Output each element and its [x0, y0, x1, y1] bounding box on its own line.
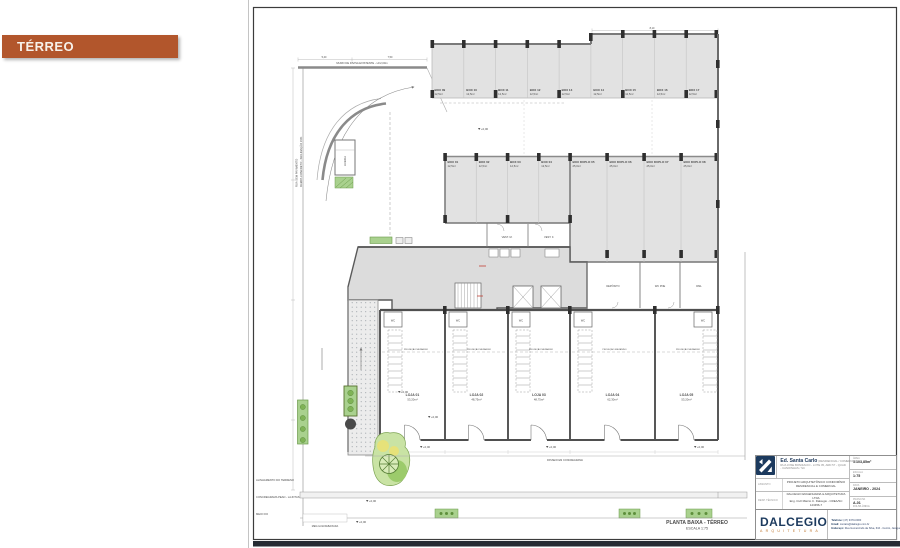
svg-text:WC: WC: [701, 320, 705, 323]
dalcegio-logo-icon: [756, 456, 775, 475]
svg-text:53,20m²: 53,20m²: [681, 398, 691, 402]
svg-text:PROJEÇÃO MEZANINO: PROJEÇÃO MEZANINO: [602, 348, 626, 351]
titleblock: SANTA CARLO Ed. Santa Carlo (RESIDENCIAL…: [755, 455, 897, 540]
svg-text:PASSEIO EM CONCREGRAMA: PASSEIO EM CONCREGRAMA: [547, 459, 583, 462]
svg-text:LOJA 03: LOJA 03: [532, 393, 546, 397]
field-date: DATA JANEIRO - 2024: [850, 483, 896, 497]
svg-text:BOX 14: BOX 14: [593, 88, 604, 92]
svg-text:+0,00: +0,00: [369, 499, 377, 503]
svg-text:25,0m²: 25,0m²: [610, 164, 618, 168]
dim-label: 8,10: [650, 27, 655, 30]
svg-text:WC: WC: [519, 320, 523, 323]
svg-text:WC: WC: [456, 320, 460, 323]
svg-text:BOX 13: BOX 13: [562, 88, 573, 92]
svg-text:+0,00: +0,00: [481, 127, 489, 131]
svg-text:25,0m²: 25,0m²: [684, 164, 692, 168]
svg-text:+0,00: +0,00: [549, 445, 557, 449]
svg-text:BOX 01: BOX 01: [448, 160, 459, 164]
svg-text:12,5m²: 12,5m²: [689, 92, 697, 96]
wall-note: MURO DE DIVISA EXISTENTE - H=2,00m: [336, 61, 388, 65]
firm-name: DALCEGIO: [760, 516, 827, 528]
svg-text:BOX 02: BOX 02: [479, 160, 490, 164]
field-area: ÁREA 1.103,85m²: [850, 456, 896, 470]
svg-text:+0,00: +0,00: [431, 415, 439, 419]
svg-text:WC PNE: WC PNE: [655, 284, 666, 288]
svg-text:BOX 16: BOX 16: [657, 88, 668, 92]
svg-text:12,5m²: 12,5m²: [448, 164, 456, 168]
svg-text:12,5m²: 12,5m²: [625, 92, 633, 96]
svg-text:WC: WC: [391, 320, 395, 323]
svg-text:BOX 12: BOX 12: [530, 88, 541, 92]
svg-text:VEST. F.: VEST. F.: [544, 235, 554, 239]
svg-text:12,5m²: 12,5m²: [510, 164, 518, 168]
svg-text:PROJEÇÃO MEZANINO: PROJEÇÃO MEZANINO: [404, 348, 428, 351]
firm-contact: Telefone: (47) 3370-0000 Email: contato@…: [827, 510, 900, 539]
svg-text:DML: DML: [696, 284, 702, 288]
svg-text:LIXEIRA: LIXEIRA: [343, 156, 347, 166]
svg-text:12,5m²: 12,5m²: [435, 92, 443, 96]
svg-text:12,5m²: 12,5m²: [541, 164, 549, 168]
svg-text:+0,00: +0,00: [697, 445, 705, 449]
stair-core: [455, 283, 481, 308]
svg-text:BOX 17: BOX 17: [689, 88, 700, 92]
titleblock-fields: ÁREA 1.103,85m² ESCALA 1:75 DATA JANEIRO…: [850, 456, 896, 509]
field-sheet: PRANCHA A-01 FOLHA ÚNICA: [850, 497, 896, 510]
dim-label: 5,40: [322, 56, 327, 59]
svg-text:12,5m²: 12,5m²: [479, 164, 487, 168]
svg-text:PROJEÇÃO MEZANINO: PROJEÇÃO MEZANINO: [676, 348, 700, 351]
svg-text:48,75m²: 48,75m²: [471, 398, 481, 402]
svg-text:12,5m²: 12,5m²: [593, 92, 601, 96]
svg-text:BOX DUPLO 06: BOX DUPLO 06: [610, 160, 632, 164]
field-scale: ESCALA 1:75: [850, 470, 896, 484]
street-label: RUA SEM PAVIMENTO: [295, 159, 299, 187]
svg-text:12,5m²: 12,5m²: [498, 92, 506, 96]
firm-logo: DALCEGIO ARQUITETURA: [756, 516, 827, 533]
svg-text:48,75m²: 48,75m²: [534, 398, 544, 402]
margin-note: MEIO FIO: [256, 512, 268, 516]
svg-text:+0,00: +0,00: [401, 390, 409, 394]
svg-text:+0,00: +0,00: [423, 445, 431, 449]
svg-text:12,5m²: 12,5m²: [562, 92, 570, 96]
svg-text:BOX DUPLO 08: BOX DUPLO 08: [684, 160, 706, 164]
titleblock-row-responsible: RESP. TÉCNICO DALCEGIO ENGENHARIA & ARQU…: [756, 492, 849, 509]
svg-text:BOX 09: BOX 09: [435, 88, 446, 92]
svg-text:12,5m²: 12,5m²: [657, 92, 665, 96]
svg-text:BOX DUPLO 07: BOX DUPLO 07: [647, 160, 669, 164]
svg-text:WC: WC: [581, 320, 585, 323]
garden-bed: [373, 433, 410, 486]
svg-text:PROJEÇÃO MEZANINO: PROJEÇÃO MEZANINO: [467, 348, 491, 351]
svg-text:+0,00: +0,00: [359, 520, 367, 524]
svg-text:53,20m²: 53,20m²: [407, 398, 417, 402]
svg-text:25,0m²: 25,0m²: [573, 164, 581, 168]
svg-text:LOJA 02: LOJA 02: [470, 393, 484, 397]
svg-text:BOX 10: BOX 10: [466, 88, 477, 92]
project-address-2: - CANOINHAS / SC: [780, 467, 846, 470]
svg-text:MEIA GUIA REBAIXADA: MEIA GUIA REBAIXADA: [312, 525, 339, 528]
svg-text:ESCALA 1:75: ESCALA 1:75: [686, 527, 708, 531]
svg-text:BOX 03: BOX 03: [510, 160, 521, 164]
svg-text:BOX 11: BOX 11: [498, 88, 509, 92]
svg-text:BOX 15: BOX 15: [625, 88, 636, 92]
svg-text:12,5m²: 12,5m²: [530, 92, 538, 96]
margin-note: ALINHAMENTO DO TERRENO: [256, 478, 294, 482]
svg-text:BOX DUPLO 05: BOX DUPLO 05: [573, 160, 595, 164]
firm-tagline: ARQUITETURA: [760, 529, 827, 533]
svg-text:PLANTA BAIXA - TÉRREO: PLANTA BAIXA - TÉRREO: [666, 518, 728, 526]
svg-text:LOJA 04: LOJA 04: [606, 393, 620, 397]
svg-text:PROJEÇÃO MEZANINO: PROJEÇÃO MEZANINO: [529, 348, 553, 351]
svg-text:BOX 04: BOX 04: [541, 160, 552, 164]
dim-label: 7,50: [388, 56, 393, 59]
svg-text:62,30m²: 62,30m²: [607, 398, 617, 402]
svg-text:VEST. M.: VEST. M.: [502, 235, 513, 239]
svg-text:LOJA 05: LOJA 05: [680, 393, 694, 397]
titleblock-row-subject: ASSUNTO PROJETO ARQUITETÔNICO CONDOMÍNIO…: [756, 479, 849, 492]
tree-symbol: [345, 419, 356, 430]
trash-enclosure: LIXEIRA: [335, 140, 355, 188]
svg-text:25,0m²: 25,0m²: [647, 164, 655, 168]
svg-text:12,5m²: 12,5m²: [466, 92, 474, 96]
